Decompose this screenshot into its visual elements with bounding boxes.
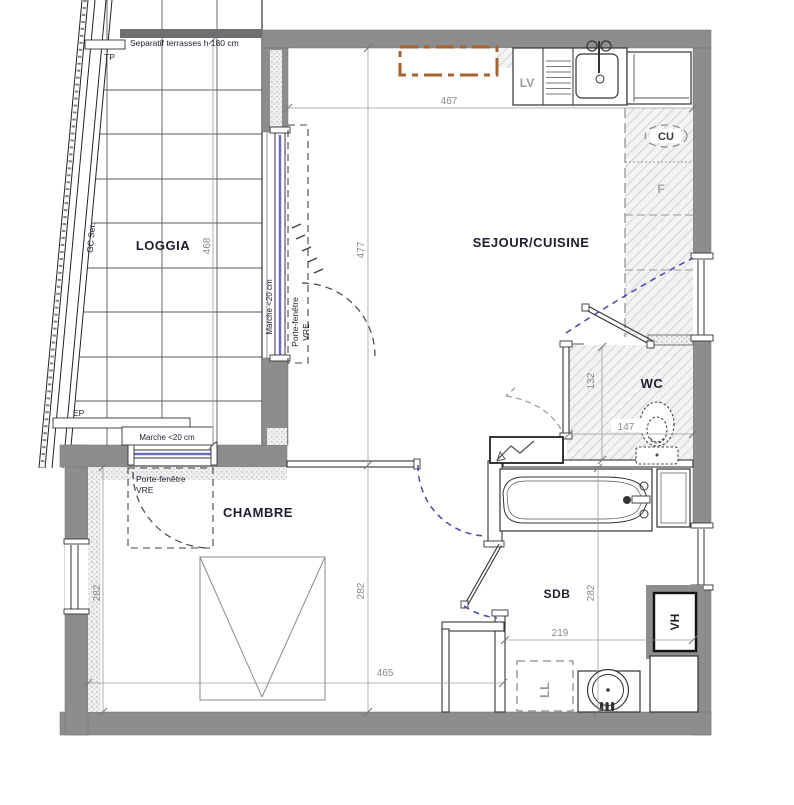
tp-label: TP <box>104 52 115 62</box>
dim-wall-thickness: 18 <box>354 720 363 728</box>
ep-label: EP <box>73 408 85 418</box>
dim-sejour-width: 467 <box>441 96 458 107</box>
wall-top <box>262 30 711 48</box>
marche-chambre-label: Marche <20 cm <box>139 433 195 442</box>
floor-plan-page: Separatif terrasses h 180 cm TP EP GC Se… <box>0 0 794 800</box>
f-label: F <box>657 182 664 196</box>
niche-below-shaft <box>650 656 698 712</box>
separatif-bar <box>120 29 262 38</box>
tp-box <box>85 40 125 49</box>
lv-label: LV <box>520 76 534 90</box>
room-label-sdb: SDB <box>544 587 571 601</box>
room-label-wc: WC <box>641 376 664 391</box>
separatif-label: Separatif terrasses h 180 cm <box>130 38 239 48</box>
vre-sejour-label: VRE <box>301 323 311 341</box>
room-label-chambre: CHAMBRE <box>223 505 293 520</box>
dim-sdb-width: 219 <box>552 628 569 639</box>
dim-chambre-mid: 282 <box>356 582 367 599</box>
dim-sdb-height: 282 <box>586 584 597 601</box>
tub-faucet <box>623 496 631 504</box>
porte-fenetre-chambre-label: Porte-fenêtre <box>136 474 186 484</box>
room-label-sejour: SEJOUR/CUISINE <box>473 235 590 250</box>
marche-loggia-label: Marche <20 cm <box>265 279 274 335</box>
dim-sejour-height: 477 <box>356 241 367 258</box>
closet-shelf <box>442 622 504 631</box>
room-label-loggia: LOGGIA <box>136 238 190 253</box>
wall-right-upper <box>693 48 711 258</box>
vh-label: VH <box>668 614 682 631</box>
kitchen-unit-corner <box>627 52 691 104</box>
vre-chambre-label: VRE <box>136 485 154 495</box>
basin-faucet-icon <box>600 702 614 711</box>
electrical-panel <box>490 437 563 463</box>
dim-wc-width: 147 <box>618 422 635 433</box>
partition-sejour-chambre <box>287 461 418 467</box>
dim-chambre-width: 465 <box>377 668 394 679</box>
closet-side-wall <box>442 629 449 712</box>
cu-label: CU <box>658 131 674 143</box>
porte-fenetre-sejour-label: Porte-fenêtre <box>290 297 300 347</box>
wc-top-wall-hatched <box>648 335 693 345</box>
wc-floor-hatch <box>567 345 693 460</box>
dim-loggia-height: 468 <box>202 237 213 254</box>
bath-shelf-unit <box>657 469 690 527</box>
dim-chambre-left: 282 <box>92 584 103 601</box>
ll-label: LL <box>537 682 552 698</box>
ep-marker <box>53 418 190 428</box>
wall-bottom <box>60 712 711 735</box>
floor-plan-drawing: Separatif terrasses h 180 cm TP EP GC Se… <box>0 0 794 800</box>
wc-left-wall <box>563 345 569 437</box>
dim-wc-height: 132 <box>586 372 597 389</box>
